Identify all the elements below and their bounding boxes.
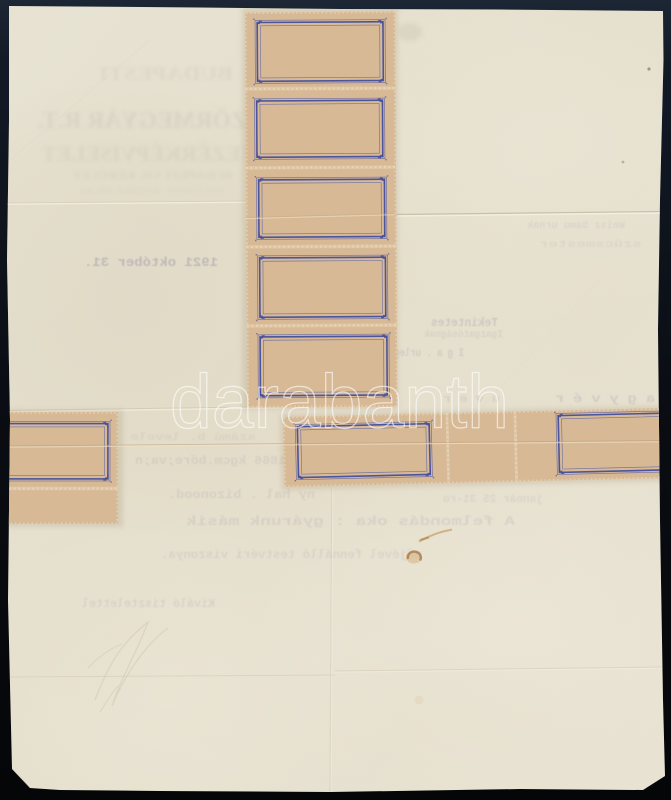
svg-text:szűcsmester: szűcsmester xyxy=(539,239,642,251)
svg-text:darabanth: darabanth xyxy=(170,360,509,445)
svg-text:Tekintetes: Tekintetes xyxy=(431,316,498,330)
svg-text:janoár 25 31-ro: janoár 25 31-ro xyxy=(443,494,543,506)
svg-text:Igazgatóságnak: Igazgatóságnak xyxy=(424,329,503,341)
svg-text:1921 október 31.: 1921 október 31. xyxy=(84,255,218,270)
svg-text:ny hal . bizonood.: ny hal . bizonood. xyxy=(168,488,315,502)
svg-text:nőjével fennálló testvéri visz: nőjével fennálló testvéri viszonya. xyxy=(161,548,422,562)
svg-text:1866 kgcm.bőre;va;n: 1866 kgcm.bőre;va;n xyxy=(135,454,286,468)
svg-text:TELEFON: JÓZSEF 105-62: TELEFON: JÓZSEF 105-62 xyxy=(79,186,225,196)
svg-text:SZÕRMEGYÁR R.T.: SZÕRMEGYÁR R.T. xyxy=(38,108,260,134)
svg-text:Kiváló tisztelettel: Kiváló tisztelettel xyxy=(82,597,215,611)
svg-text:A felmondás oka : gyárunk mási: A felmondás oka : gyárunk másik xyxy=(186,514,515,529)
svg-text:a g y v é r: a g y v é r xyxy=(555,392,655,406)
svg-text:VEZÉRKÉPVISELET: VEZÉRKÉPVISELET xyxy=(42,141,256,166)
svg-text:Weisz Samu urnak: Weisz Samu urnak xyxy=(527,220,625,232)
svg-text:BUDAPEST VII. KERÜLET: BUDAPEST VII. KERÜLET xyxy=(73,168,233,182)
